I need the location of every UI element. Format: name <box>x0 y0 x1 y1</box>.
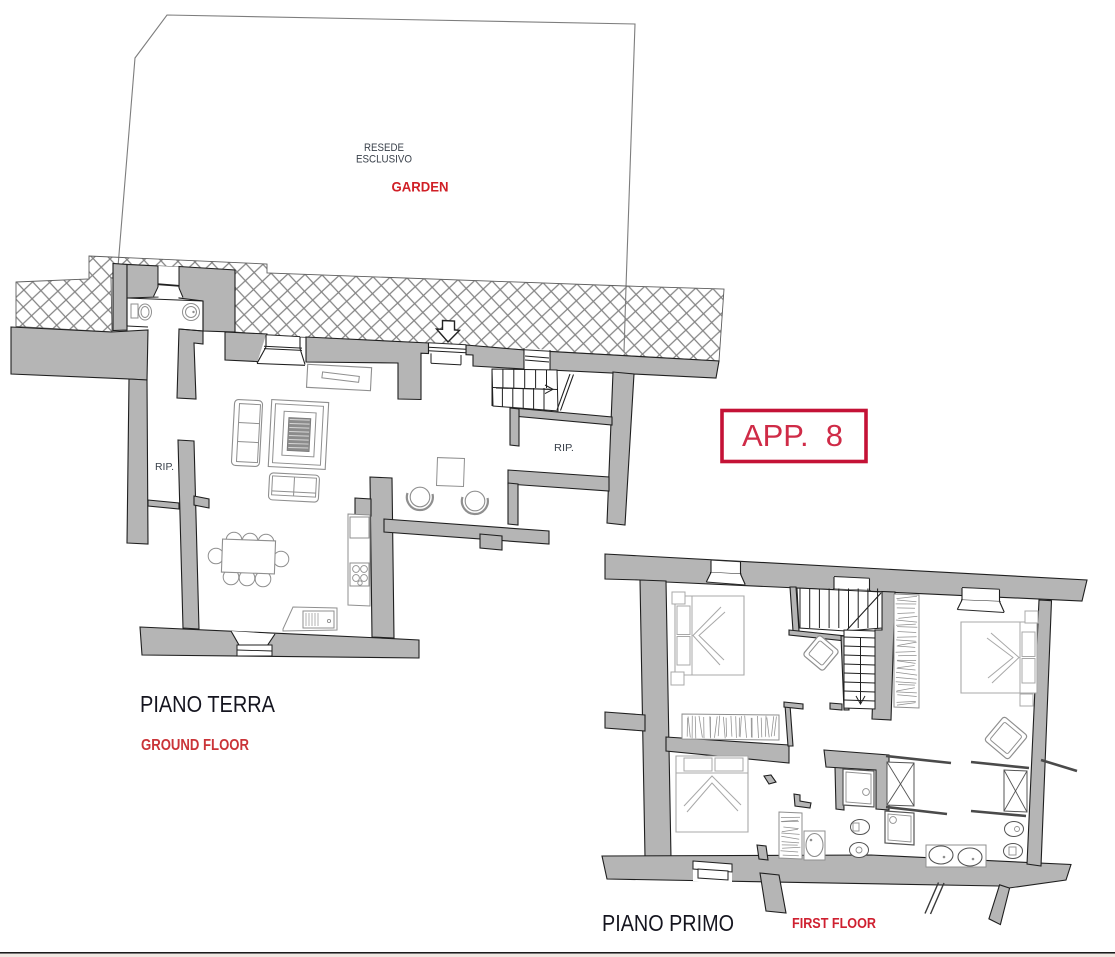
svg-text:GROUND FLOOR: GROUND FLOOR <box>141 737 249 754</box>
svg-text:PIANO PRIMO: PIANO PRIMO <box>602 910 734 936</box>
svg-text:GARDEN: GARDEN <box>392 180 449 195</box>
svg-text:RIP.: RIP. <box>554 443 574 454</box>
svg-text:ESCLUSIVO: ESCLUSIVO <box>356 154 412 166</box>
svg-text:RIP.: RIP. <box>155 462 174 473</box>
svg-text:FIRST FLOOR: FIRST FLOOR <box>792 916 876 932</box>
svg-text:PIANO TERRA: PIANO TERRA <box>140 691 275 717</box>
svg-text:APP. 8: APP. 8 <box>742 418 843 453</box>
svg-text:RESEDE: RESEDE <box>364 142 404 154</box>
